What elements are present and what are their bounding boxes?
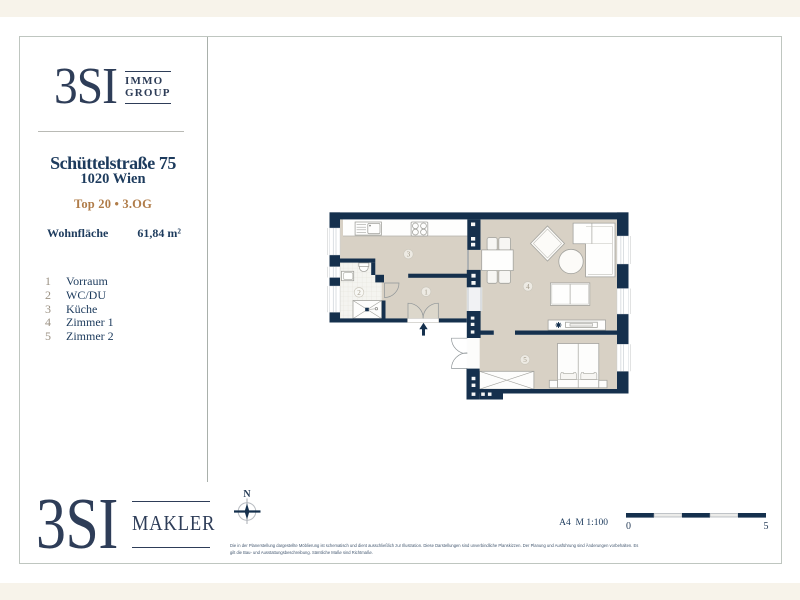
svg-text:4: 4 [526,283,530,291]
svg-text:5: 5 [523,356,527,364]
svg-text:2: 2 [357,289,361,297]
svg-text:1: 1 [424,288,428,296]
svg-text:3: 3 [407,251,411,259]
